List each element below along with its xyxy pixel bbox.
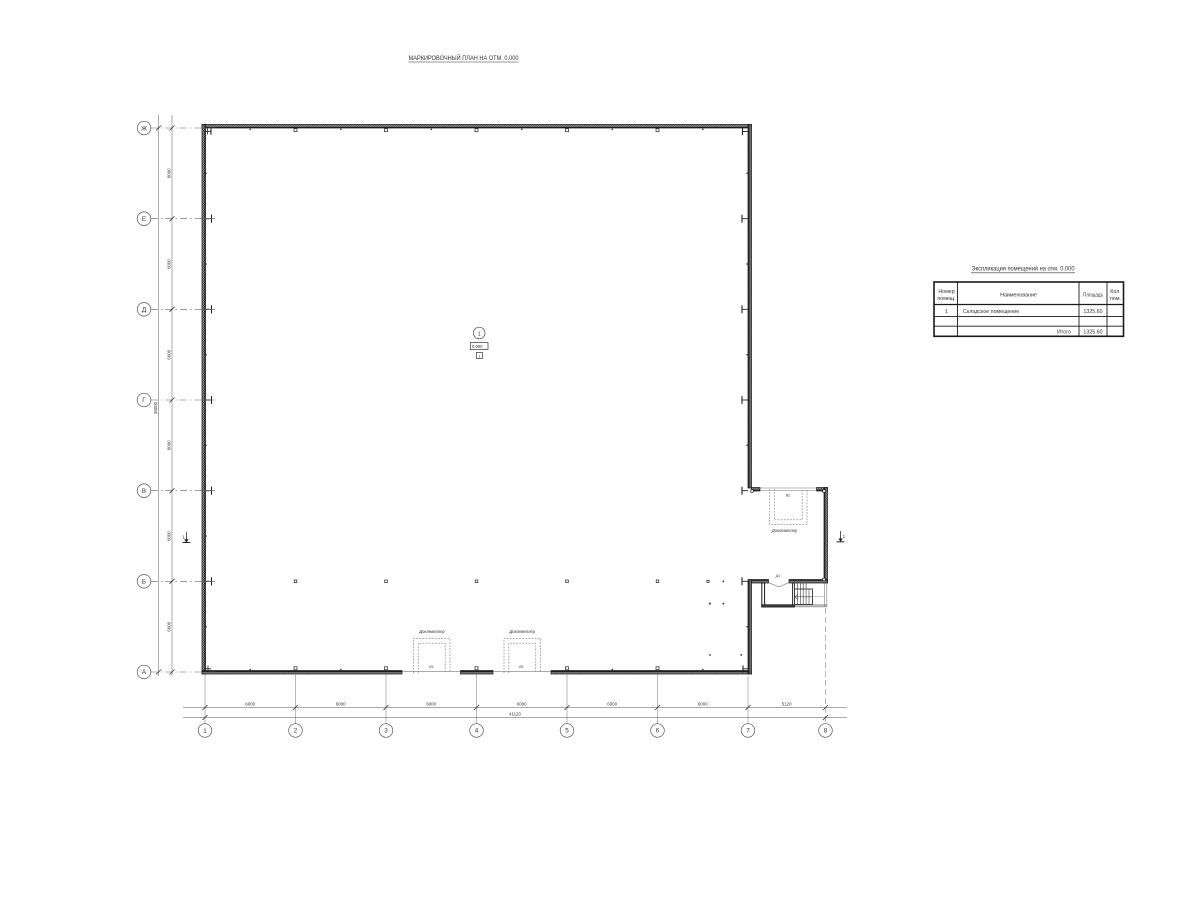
svg-text:6000: 6000 <box>166 259 171 269</box>
svg-text:В1: В1 <box>519 665 523 669</box>
svg-text:4: 4 <box>475 728 479 735</box>
svg-text:6000: 6000 <box>166 440 171 450</box>
svg-text:0.000: 0.000 <box>472 344 483 349</box>
svg-text:6000: 6000 <box>607 702 617 707</box>
svg-text:6000: 6000 <box>166 349 171 359</box>
svg-text:6: 6 <box>656 728 660 735</box>
svg-text:Б: Б <box>142 578 146 585</box>
svg-text:5: 5 <box>565 728 569 735</box>
svg-text:41120: 41120 <box>509 712 521 717</box>
svg-text:пом.: пом. <box>1110 296 1121 302</box>
svg-text:5120: 5120 <box>782 702 792 707</box>
svg-text:Складское помещение: Складское помещение <box>963 309 1019 315</box>
svg-text:36000: 36000 <box>153 401 158 414</box>
svg-text:Доклевеллер: Доклевеллер <box>508 629 535 634</box>
svg-text:Итого: Итого <box>1057 330 1071 336</box>
svg-text:Г: Г <box>142 397 146 404</box>
svg-text:Кол.: Кол. <box>1110 289 1120 295</box>
svg-text:6000: 6000 <box>166 531 171 541</box>
svg-text:2: 2 <box>294 728 298 735</box>
svg-text:Доклевеллер: Доклевеллер <box>418 629 445 634</box>
svg-text:1: 1 <box>843 534 846 539</box>
svg-text:6000: 6000 <box>245 702 255 707</box>
svg-text:8: 8 <box>824 728 828 735</box>
svg-text:3: 3 <box>384 728 388 735</box>
svg-text:В2: В2 <box>786 493 790 497</box>
svg-text:6000: 6000 <box>166 621 171 631</box>
svg-text:Экспликация помещений на отм.: Экспликация помещений на отм. 0.000 <box>972 266 1076 273</box>
svg-text:1: 1 <box>182 535 185 540</box>
svg-text:Д: Д <box>142 306 147 313</box>
svg-text:Ж: Ж <box>141 125 147 132</box>
svg-text:1: 1 <box>945 309 948 315</box>
svg-text:1325.60: 1325.60 <box>1083 330 1102 336</box>
svg-text:6000: 6000 <box>426 702 436 707</box>
svg-text:Наименование: Наименование <box>1000 293 1037 299</box>
svg-text:7: 7 <box>746 728 750 735</box>
svg-text:6000: 6000 <box>698 702 708 707</box>
svg-text:помещ.: помещ. <box>937 296 955 302</box>
svg-text:МАРКИРОВОЧНЫЙ ПЛАН НА ОТМ. 0.0: МАРКИРОВОЧНЫЙ ПЛАН НА ОТМ. 0.000 <box>409 53 519 62</box>
svg-text:1: 1 <box>203 728 207 735</box>
svg-text:Доклевеллер: Доклевеллер <box>771 528 798 533</box>
svg-text:6000: 6000 <box>166 168 171 178</box>
svg-text:1325.60: 1325.60 <box>1083 309 1102 315</box>
svg-text:Номер: Номер <box>938 289 954 295</box>
svg-text:Д1: Д1 <box>775 574 781 578</box>
svg-text:Площадь: Площадь <box>1083 293 1103 299</box>
svg-text:6000: 6000 <box>517 702 527 707</box>
svg-text:В1: В1 <box>429 665 433 669</box>
svg-text:6000: 6000 <box>336 702 346 707</box>
svg-text:1: 1 <box>478 354 480 358</box>
svg-text:1: 1 <box>478 331 481 337</box>
svg-text:Е: Е <box>142 216 146 223</box>
svg-text:В: В <box>142 488 146 495</box>
